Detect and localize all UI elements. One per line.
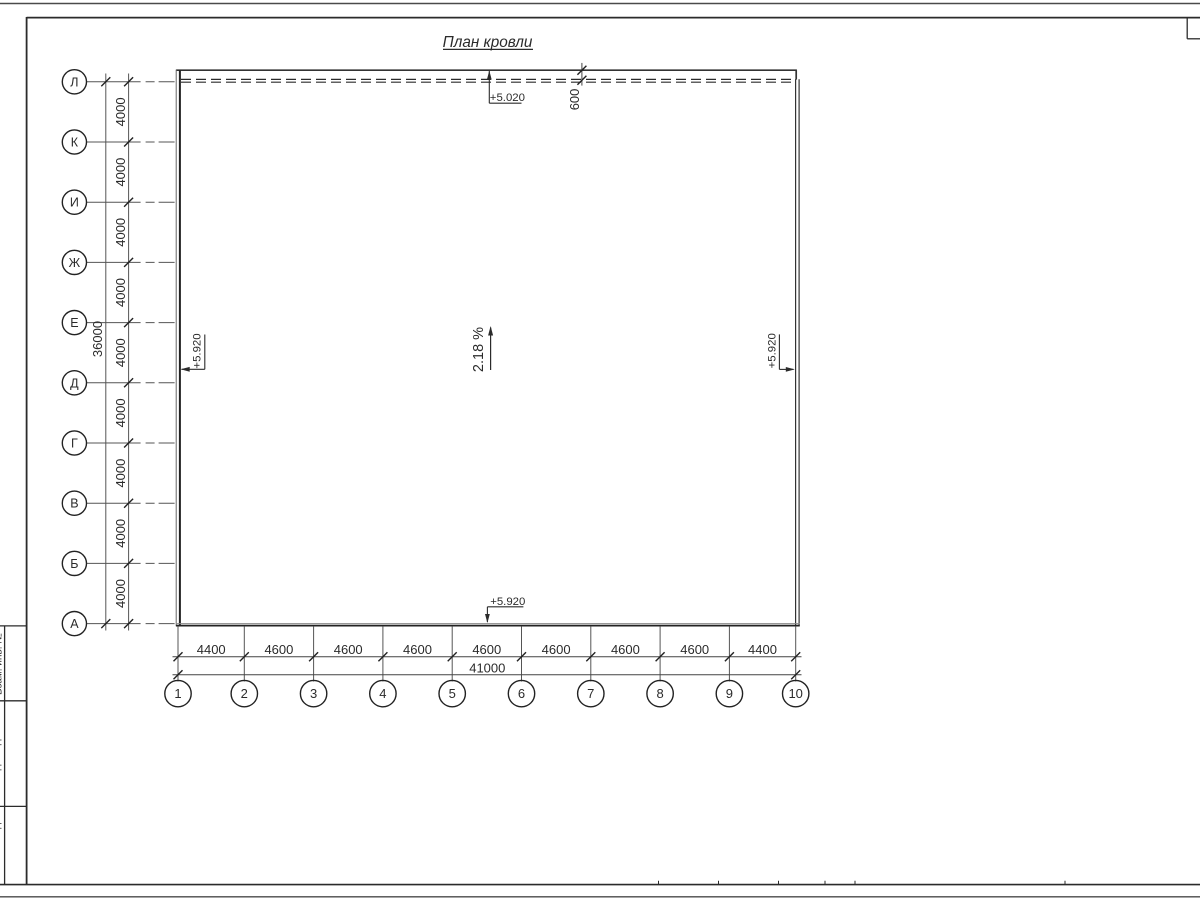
svg-text:+5.020: +5.020	[490, 92, 525, 104]
svg-text:И: И	[70, 196, 79, 210]
svg-text:Д: Д	[70, 376, 79, 390]
svg-text:Л: Л	[70, 75, 78, 89]
svg-text:4600: 4600	[334, 642, 363, 657]
svg-text:4600: 4600	[611, 642, 640, 657]
svg-text:5: 5	[449, 686, 456, 701]
svg-text:Инв. № подл.: Инв. № подл.	[0, 814, 2, 876]
svg-text:Е: Е	[70, 316, 78, 330]
svg-text:6: 6	[518, 686, 525, 701]
svg-text:7: 7	[587, 686, 594, 701]
svg-text:4400: 4400	[748, 642, 777, 657]
svg-text:4000: 4000	[113, 398, 128, 427]
svg-text:10: 10	[788, 686, 802, 701]
svg-text:План кровли: План кровли	[443, 34, 533, 51]
svg-text:Взам. инв. №: Взам. инв. №	[0, 633, 4, 695]
svg-text:4000: 4000	[113, 158, 128, 187]
svg-text:9: 9	[726, 686, 733, 701]
svg-text:1: 1	[174, 686, 181, 701]
svg-text:4600: 4600	[472, 642, 501, 657]
svg-text:2: 2	[241, 686, 248, 701]
svg-text:4000: 4000	[113, 218, 128, 247]
svg-text:2.18 %: 2.18 %	[471, 327, 487, 372]
svg-text:Г: Г	[71, 437, 78, 451]
svg-text:4000: 4000	[113, 459, 128, 488]
svg-text:4600: 4600	[542, 642, 571, 657]
svg-text:4000: 4000	[113, 338, 128, 367]
svg-text:600: 600	[567, 89, 582, 111]
svg-text:Ж: Ж	[69, 256, 81, 270]
svg-text:+5.920: +5.920	[490, 596, 525, 608]
svg-text:4000: 4000	[113, 579, 128, 608]
svg-text:4000: 4000	[113, 519, 128, 548]
svg-text:3: 3	[310, 686, 317, 701]
svg-text:4400: 4400	[197, 642, 226, 657]
svg-text:Подп. и дата: Подп. и дата	[0, 724, 2, 783]
svg-text:4600: 4600	[264, 642, 293, 657]
svg-text:4600: 4600	[680, 642, 709, 657]
svg-text:8: 8	[656, 686, 663, 701]
svg-text:В: В	[70, 497, 78, 511]
svg-text:41000: 41000	[469, 660, 505, 675]
svg-text:4: 4	[379, 686, 386, 701]
svg-text:36000: 36000	[90, 321, 105, 357]
svg-text:4000: 4000	[113, 97, 128, 126]
svg-text:Б: Б	[70, 557, 78, 571]
svg-text:+5.920: +5.920	[767, 333, 779, 368]
svg-text:4000: 4000	[113, 278, 128, 307]
svg-text:4600: 4600	[403, 642, 432, 657]
svg-text:+5.920: +5.920	[192, 333, 204, 368]
svg-text:К: К	[71, 136, 79, 150]
svg-text:А: А	[70, 617, 79, 631]
